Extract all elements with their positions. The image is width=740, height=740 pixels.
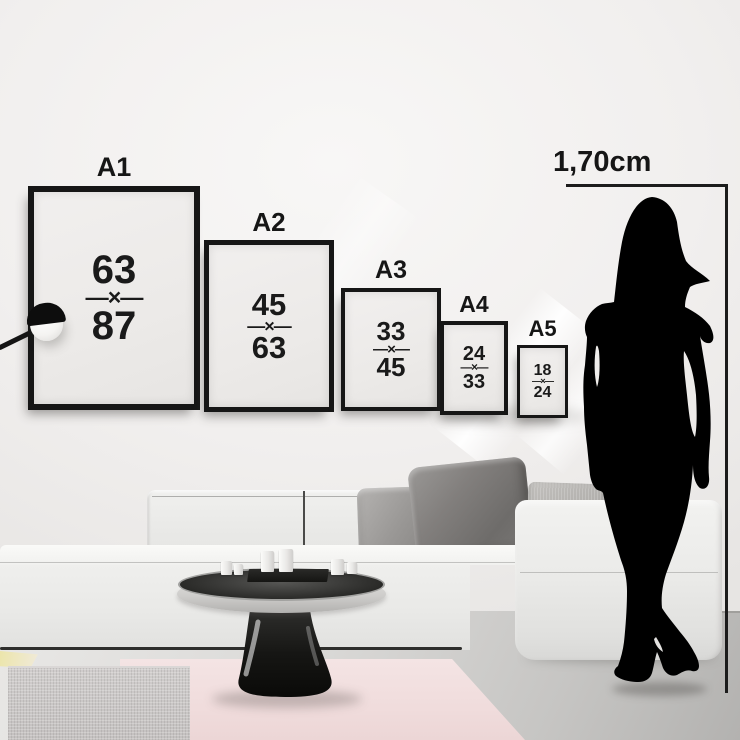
frame-dimensions: 33 —×— 45	[373, 321, 409, 379]
frame-size-label: A3	[375, 258, 407, 283]
dimension-width: 33	[377, 321, 406, 342]
frame-size-label: A5	[528, 318, 556, 340]
frame-dimensions: 24 —×— 33	[461, 346, 488, 390]
frame-dimensions: 18 —×— 24	[532, 364, 553, 400]
woman-silhouette-path	[583, 197, 713, 682]
frame-size-label: A2	[252, 209, 285, 235]
picture-frame: 24 —×— 33	[440, 321, 508, 415]
dimension-width: 45	[252, 292, 286, 317]
dimension-height: 63	[252, 335, 286, 360]
candle	[234, 564, 243, 575]
height-measure-label: 1,70cm	[553, 146, 713, 179]
picture-frame: 18 —×— 24	[517, 345, 568, 418]
picture-frame: 63 —×— 87	[28, 186, 200, 410]
picture-frame: 33 —×— 45	[341, 288, 441, 411]
poster-frame-a2: A2 45 —×— 63	[204, 209, 334, 412]
poster-size-guide-scene: 1,70cm A1 63 —×— 87 A2 45 —×— 63 A3 33	[0, 0, 740, 740]
poster-frame-a5: A5 18 —×— 24	[517, 318, 568, 418]
frame-size-label: A4	[459, 293, 488, 316]
dimension-height: 87	[92, 310, 137, 343]
frame-dimensions: 63 —×— 87	[86, 254, 143, 343]
frame-dimensions: 45 —×— 63	[247, 292, 290, 361]
woman-silhouette	[570, 185, 740, 695]
candle	[221, 561, 232, 575]
candle	[331, 559, 344, 575]
dimension-height: 33	[463, 374, 485, 390]
poster-frame-a1: A1 63 —×— 87	[28, 154, 200, 410]
frame-size-label: A1	[97, 154, 132, 181]
candle	[347, 562, 357, 574]
candle	[279, 549, 293, 572]
sofa-seat-piping	[0, 562, 520, 563]
dimension-width: 24	[463, 346, 485, 362]
poster-frame-a4: A4 24 —×— 33	[440, 293, 508, 415]
candle	[261, 551, 274, 572]
poster-frame-a3: A3 33 —×— 45	[341, 258, 441, 411]
table-base	[228, 606, 343, 701]
dimension-height: 45	[377, 357, 406, 378]
gray-rug	[8, 666, 190, 740]
dimension-height: 24	[534, 386, 552, 399]
dimension-width: 18	[534, 364, 552, 377]
picture-frame: 45 —×— 63	[204, 240, 334, 412]
dimension-width: 63	[92, 254, 137, 287]
